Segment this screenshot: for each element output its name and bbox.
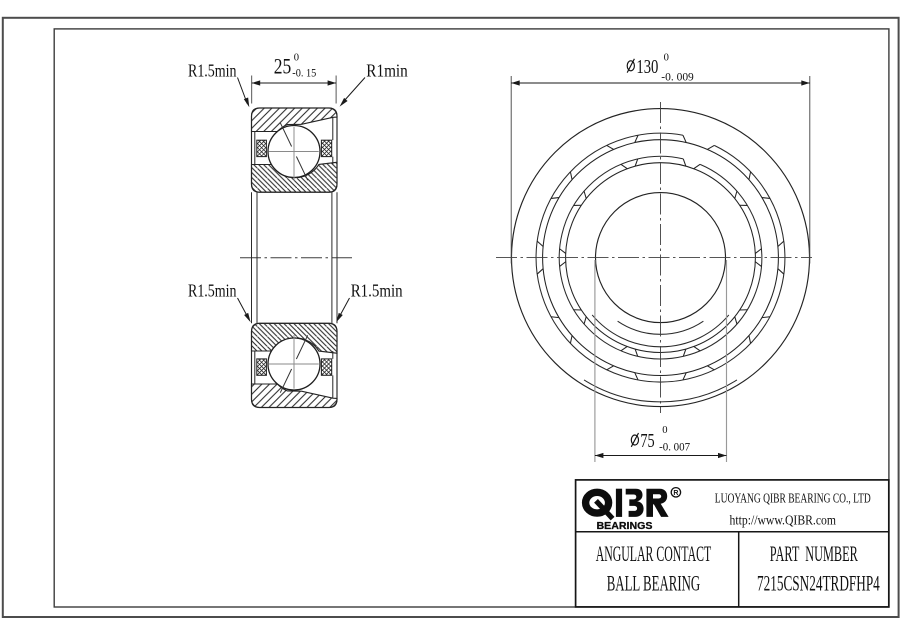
svg-text:0: 0 [294, 52, 300, 64]
svg-text:BEARINGS: BEARINGS [597, 520, 653, 532]
svg-text:http://www.QIBR.com: http://www.QIBR.com [730, 513, 837, 528]
svg-text:130: 130 [636, 56, 658, 78]
svg-text:PART NUMBER: PART NUMBER [770, 541, 858, 566]
svg-text:ANGULAR CONTACT: ANGULAR CONTACT [596, 541, 712, 566]
svg-text:75: 75 [640, 430, 654, 452]
svg-text:7215CSN24TRDFHP4: 7215CSN24TRDFHP4 [757, 570, 880, 595]
svg-text:-0. 15: -0. 15 [292, 66, 316, 80]
svg-text:-0. 007: -0. 007 [659, 440, 690, 454]
svg-text:0: 0 [664, 51, 670, 63]
svg-text:R1.5min: R1.5min [188, 281, 237, 301]
svg-text:R1.5min: R1.5min [188, 60, 237, 80]
svg-text:25: 25 [274, 54, 292, 79]
svg-text:0: 0 [662, 424, 668, 436]
svg-text:R1.5min: R1.5min [351, 281, 403, 301]
svg-text:R1min: R1min [366, 60, 408, 80]
svg-text:-0. 009: -0. 009 [661, 70, 694, 84]
svg-text:LUOYANG QIBR BEARING CO., LTD: LUOYANG QIBR BEARING CO., LTD [715, 491, 871, 506]
svg-text:BALL BEARING: BALL BEARING [607, 570, 701, 595]
svg-text:R: R [673, 490, 678, 497]
